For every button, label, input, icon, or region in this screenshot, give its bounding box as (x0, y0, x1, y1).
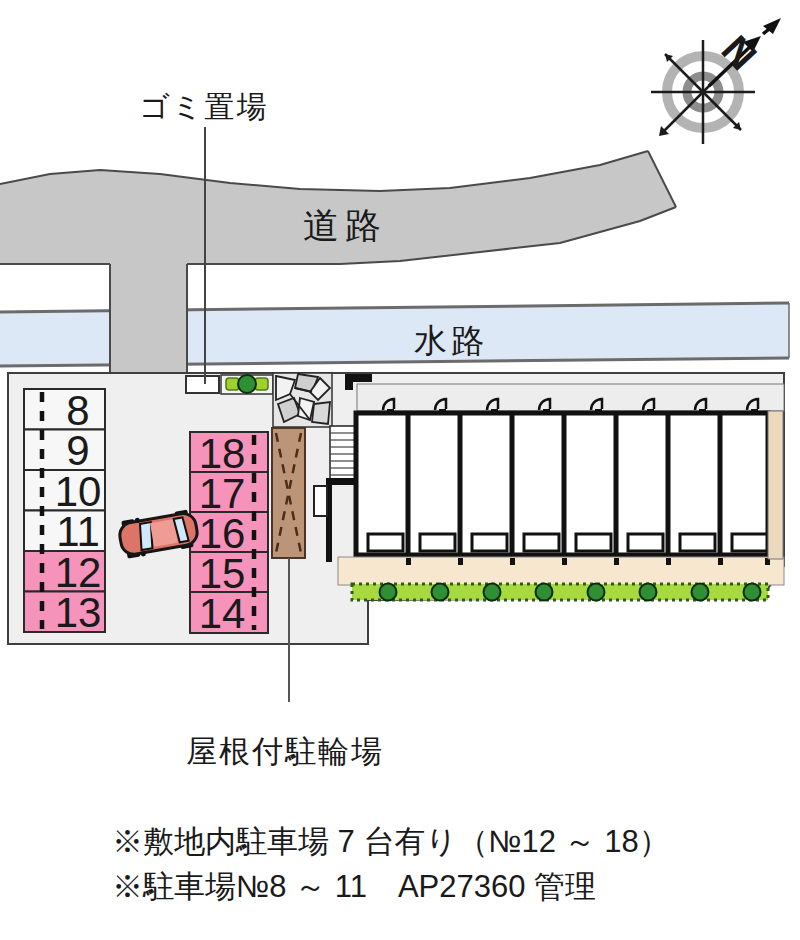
parking-left-column: 8 9 10 11 12 13 (24, 387, 105, 636)
site-plan-page: 8 9 10 11 12 13 18 17 16 15 14 (0, 0, 800, 940)
note-line-2: ※駐車場№8 ～ 11 AP27360 管理 (112, 869, 596, 904)
waterway-label: 水路 (414, 322, 488, 359)
notes: ※敷地内駐車場 7 台有り（№12 ～ 18） ※駐車場№8 ～ 11 AP27… (112, 824, 670, 904)
stone-path (273, 373, 332, 427)
road-label: 道路 (303, 205, 387, 246)
parking-number: 9 (66, 427, 89, 474)
building (356, 384, 784, 555)
tree-icon (238, 375, 256, 393)
building-eaves (357, 384, 784, 411)
parking-space-8 (24, 389, 105, 430)
parking-number: 14 (199, 590, 246, 637)
bike-shed (272, 428, 305, 558)
parking-space-9 (24, 430, 105, 471)
compass-rose: N (651, 18, 781, 144)
garbage-label: ゴミ置場 (139, 90, 268, 123)
parking-number: 13 (55, 589, 102, 636)
garbage-box (186, 376, 219, 393)
parking-number: 11 (56, 508, 100, 555)
note-line-1: ※敷地内駐車場 7 台有り（№12 ～ 18） (112, 824, 670, 859)
site-plan-svg: 8 9 10 11 12 13 18 17 16 15 14 (0, 0, 800, 940)
right-border-strip (768, 411, 783, 559)
bike-parking-label: 屋根付駐輪場 (186, 734, 384, 769)
hedge (352, 584, 768, 601)
walkway (338, 557, 784, 585)
parking-right-column: 18 17 16 15 14 (190, 430, 268, 637)
planter-strip (221, 375, 273, 394)
compass-north-label: N (713, 27, 765, 78)
